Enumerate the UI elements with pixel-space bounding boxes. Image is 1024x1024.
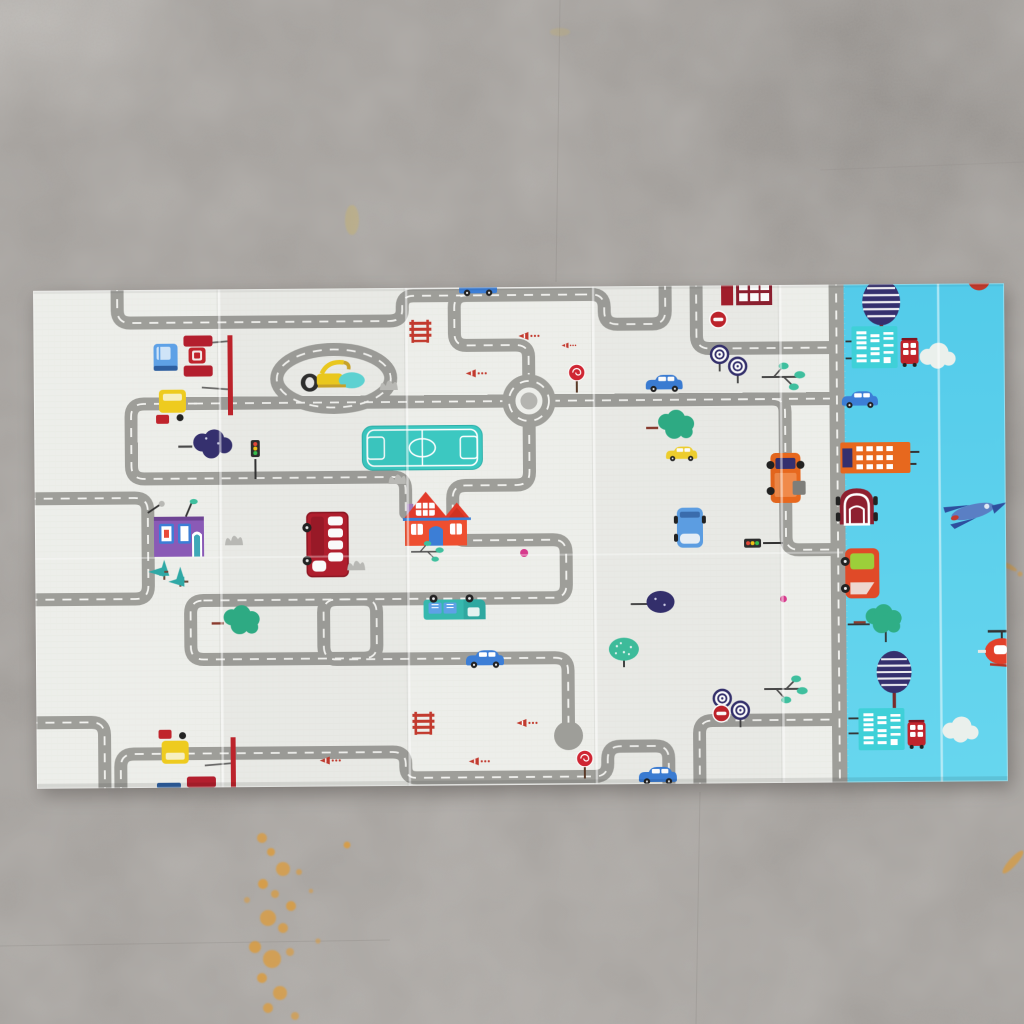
red-truck-green-windshield xyxy=(841,548,880,598)
play-mat xyxy=(33,283,1008,789)
play-mat-print xyxy=(33,283,1008,789)
orange-highrise xyxy=(840,442,919,474)
roundabout xyxy=(509,381,549,421)
photo-scene: { "scene": { "description": "Top-down ph… xyxy=(0,0,1024,1024)
cul-de-sac-bulb xyxy=(554,721,583,750)
